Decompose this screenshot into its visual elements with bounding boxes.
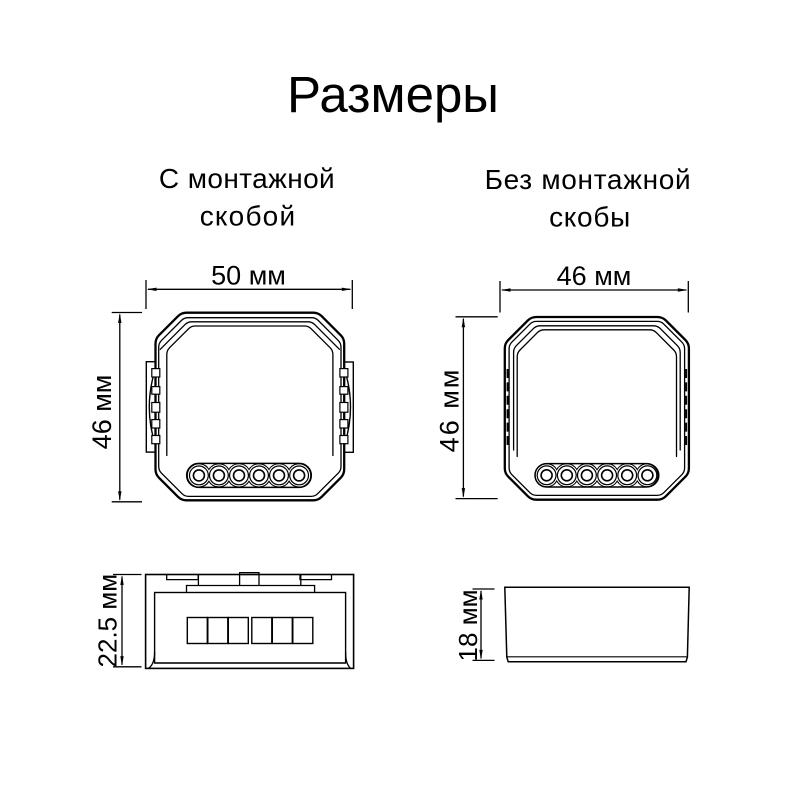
svg-text:скобой: скобой: [200, 201, 297, 232]
svg-text:18 мм: 18 мм: [453, 590, 483, 662]
svg-text:46 мм: 46 мм: [435, 368, 465, 453]
svg-text:50 мм: 50 мм: [211, 261, 286, 291]
svg-text:46 мм: 46 мм: [557, 261, 632, 291]
svg-text:скобы: скобы: [549, 202, 631, 233]
svg-text:С монтажной: С монтажной: [159, 163, 335, 194]
svg-text:Размеры: Размеры: [287, 66, 499, 123]
svg-text:22.5 мм: 22.5 мм: [92, 574, 122, 668]
svg-text:Без монтажной: Без монтажной: [485, 164, 692, 195]
svg-text:46 мм: 46 мм: [87, 375, 117, 450]
